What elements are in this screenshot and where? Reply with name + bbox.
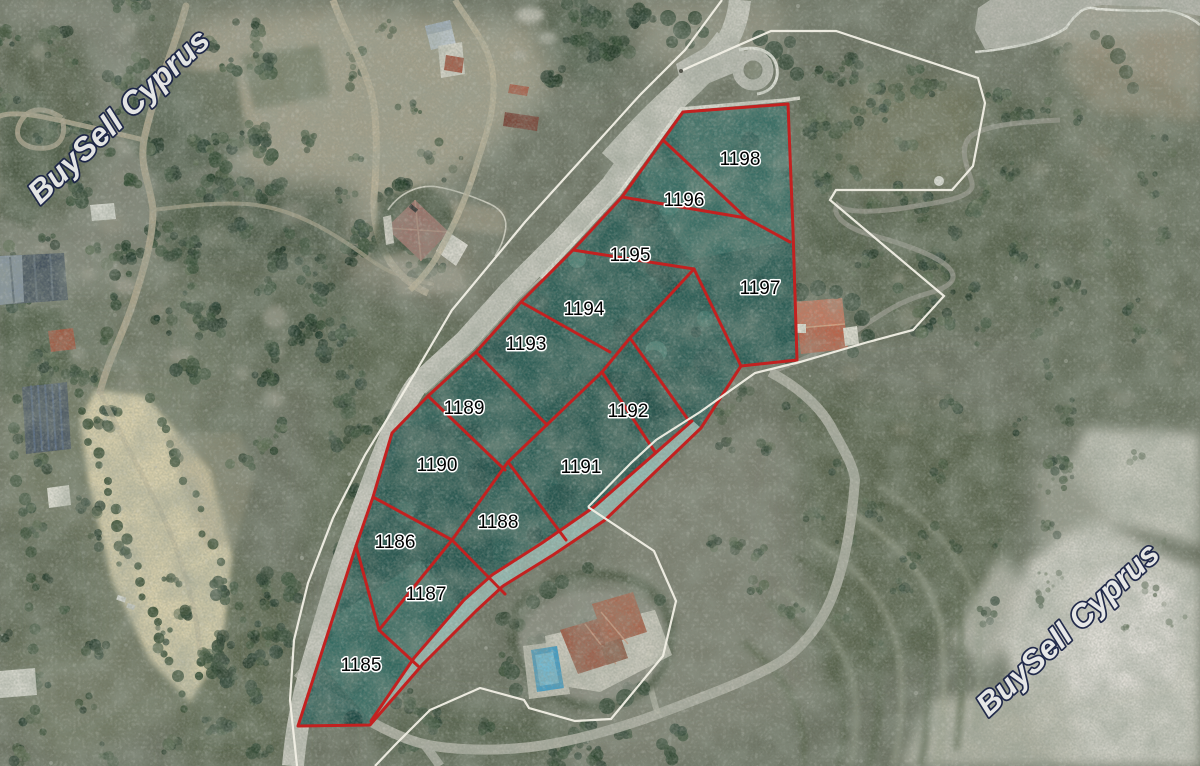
svg-text:1189: 1189 — [444, 398, 485, 419]
svg-text:1188: 1188 — [478, 512, 519, 533]
svg-text:1193: 1193 — [506, 334, 547, 355]
svg-text:1195: 1195 — [610, 245, 651, 266]
svg-text:1191: 1191 — [561, 457, 602, 478]
svg-text:1197: 1197 — [740, 278, 781, 299]
svg-text:1190: 1190 — [417, 455, 458, 476]
svg-text:1185: 1185 — [341, 655, 382, 676]
svg-text:1187: 1187 — [406, 584, 447, 605]
svg-text:1194: 1194 — [564, 299, 605, 320]
svg-text:1196: 1196 — [664, 190, 705, 211]
svg-text:1198: 1198 — [720, 149, 761, 170]
svg-text:1192: 1192 — [608, 401, 649, 422]
svg-text:1186: 1186 — [375, 532, 416, 553]
